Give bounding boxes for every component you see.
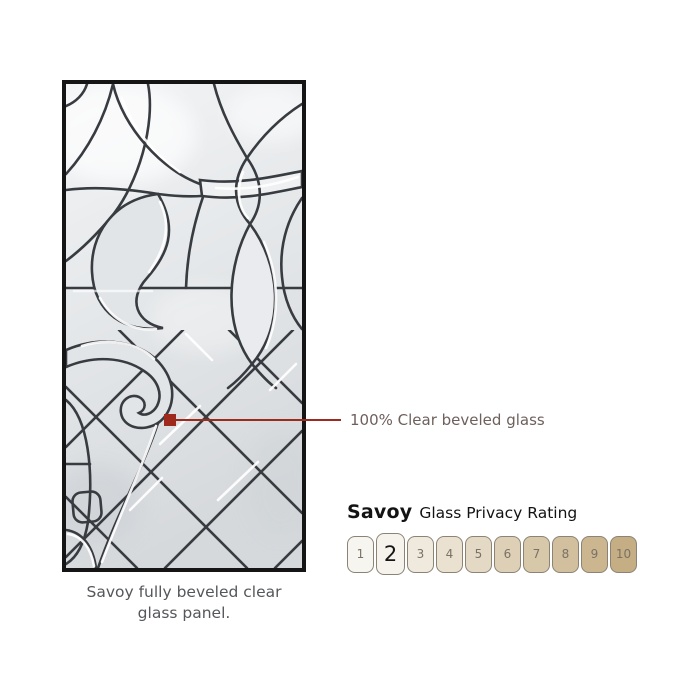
product-name: Savoy bbox=[347, 501, 412, 523]
privacy-rating-box-10: 10 bbox=[610, 536, 637, 573]
privacy-rating-heading: Savoy Glass Privacy Rating bbox=[347, 501, 637, 523]
privacy-rating-title: Glass Privacy Rating bbox=[419, 504, 577, 522]
privacy-rating-box-5: 5 bbox=[465, 536, 492, 573]
page: Savoy fully beveled clear glass panel. 1… bbox=[0, 0, 700, 700]
callout-line bbox=[176, 419, 341, 421]
privacy-rating-box-1: 1 bbox=[347, 536, 374, 573]
caption-line-1: Savoy fully beveled clear bbox=[62, 582, 306, 603]
glass-panel-image bbox=[66, 84, 302, 568]
privacy-rating-section: Savoy Glass Privacy Rating 12345678910 bbox=[347, 501, 637, 576]
privacy-rating-box-2: 2 bbox=[376, 533, 405, 575]
privacy-rating-scale: 12345678910 bbox=[347, 532, 637, 576]
callout-marker bbox=[164, 414, 176, 426]
privacy-rating-box-6: 6 bbox=[494, 536, 521, 573]
caption-line-2: glass panel. bbox=[62, 603, 306, 624]
glass-panel-frame bbox=[62, 80, 306, 572]
privacy-rating-box-7: 7 bbox=[523, 536, 550, 573]
panel-caption: Savoy fully beveled clear glass panel. bbox=[62, 582, 306, 624]
privacy-rating-box-9: 9 bbox=[581, 536, 608, 573]
privacy-rating-box-3: 3 bbox=[407, 536, 434, 573]
privacy-rating-box-8: 8 bbox=[552, 536, 579, 573]
privacy-rating-box-4: 4 bbox=[436, 536, 463, 573]
callout-label: 100% Clear beveled glass bbox=[350, 411, 545, 429]
